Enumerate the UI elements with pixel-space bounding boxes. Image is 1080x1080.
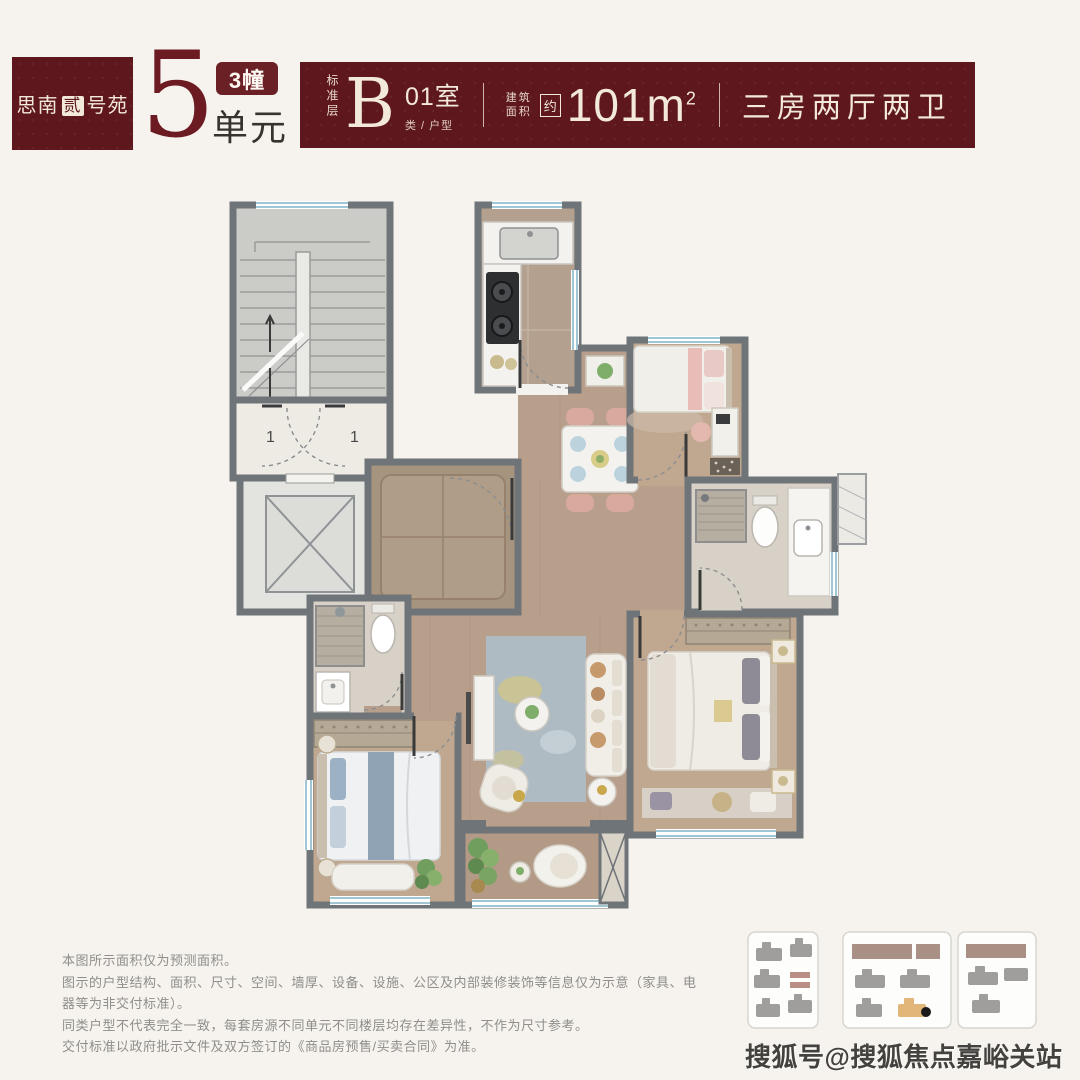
door-label-1: 1 (266, 429, 275, 446)
lounge-chair (534, 845, 586, 887)
staircase (233, 201, 390, 406)
bathroom-1 (688, 480, 838, 617)
disclaimer-line: 交付标准以政府批示文件及双方签订的《商品房预售/买卖合同》为准。 (62, 1036, 702, 1058)
bedroom-2 (304, 710, 458, 905)
nightstand-lamp (318, 735, 336, 753)
site-plan-thumbnail-1 (748, 932, 818, 1028)
disclaimer-text: 本图所示面积仅为预测面积。 图示的户型结构、面积、尺寸、空间、墙厚、设备、设施、… (62, 950, 702, 1058)
master-bed (648, 652, 777, 770)
bed-1 (634, 346, 732, 412)
bench (332, 864, 414, 890)
site-plan-thumbnail-2 (843, 932, 951, 1028)
disclaimer-line: 图示的户型结构、面积、尺寸、空间、墙厚、设备、设施、公区及内部装修装饰等信息仅为… (62, 972, 702, 1015)
entry-hall (368, 462, 518, 612)
disclaimer-line: 本图所示面积仅为预测面积。 (62, 950, 702, 972)
kitchen (478, 201, 579, 395)
sofa (586, 654, 626, 776)
watermark: 搜狐号@搜狐焦点嘉峪关站 (745, 1037, 1080, 1074)
tv-console (474, 676, 494, 760)
toilet-1 (752, 507, 778, 547)
disclaimer-line: 同类户型不代表完全一致，每套房源不同单元不同楼层均存在差异性，不作为尺寸参考。 (62, 1015, 702, 1037)
elevator (240, 474, 368, 612)
duct-shaft (600, 832, 626, 903)
site-plan-thumbnail-3 (958, 932, 1036, 1028)
master-bedroom (630, 610, 800, 838)
floor-plan: 1 1 (0, 0, 1080, 1080)
door-label-2: 1 (350, 429, 359, 446)
bed-2 (318, 752, 440, 860)
tv (466, 692, 471, 744)
bedroom-1 (627, 336, 745, 486)
desk-chair (691, 422, 711, 442)
console-plant (597, 363, 613, 379)
ac-platform (838, 474, 866, 544)
bathroom-2 (310, 598, 408, 717)
toilet-2 (371, 615, 395, 653)
